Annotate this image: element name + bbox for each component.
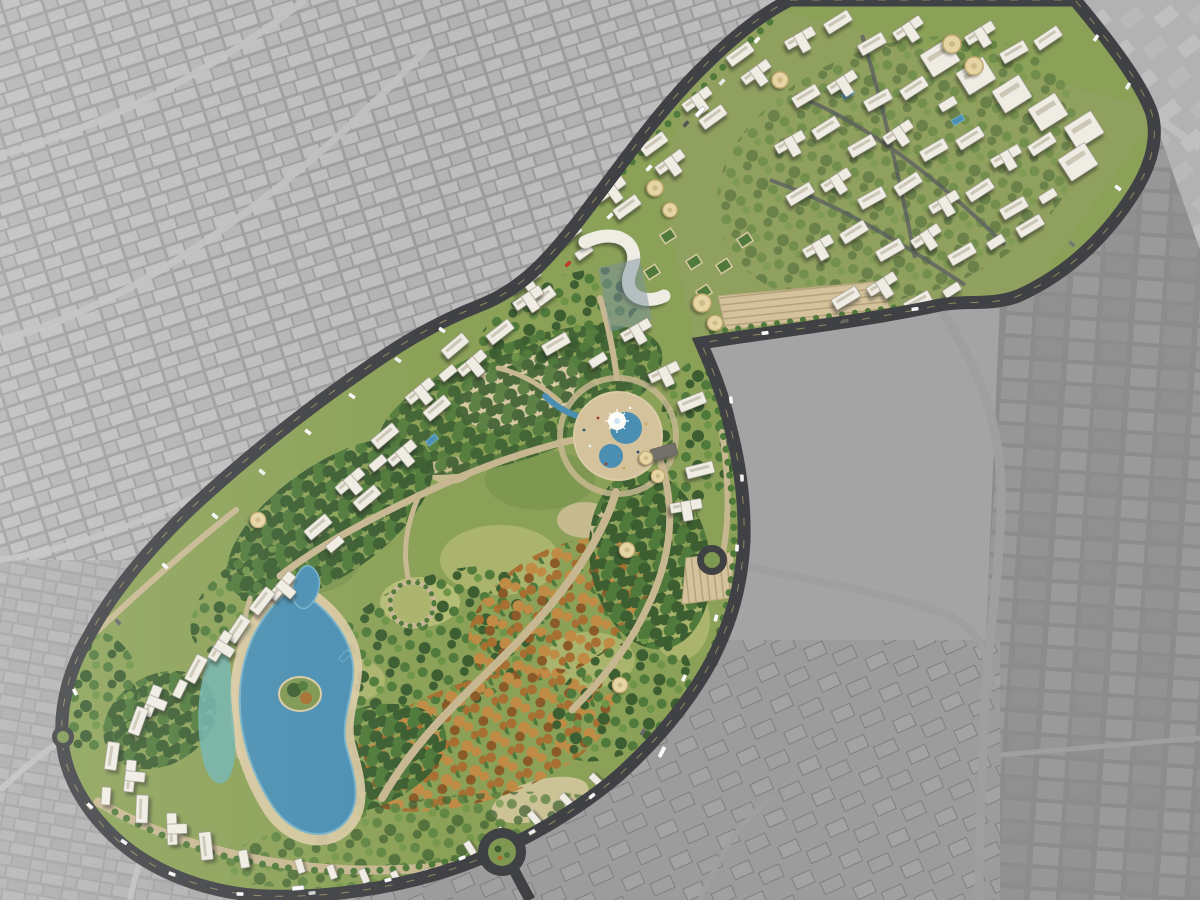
masterplan-rendering xyxy=(0,0,1200,900)
atmospheric-haze xyxy=(0,0,1200,900)
aerial-scene xyxy=(0,0,1200,900)
